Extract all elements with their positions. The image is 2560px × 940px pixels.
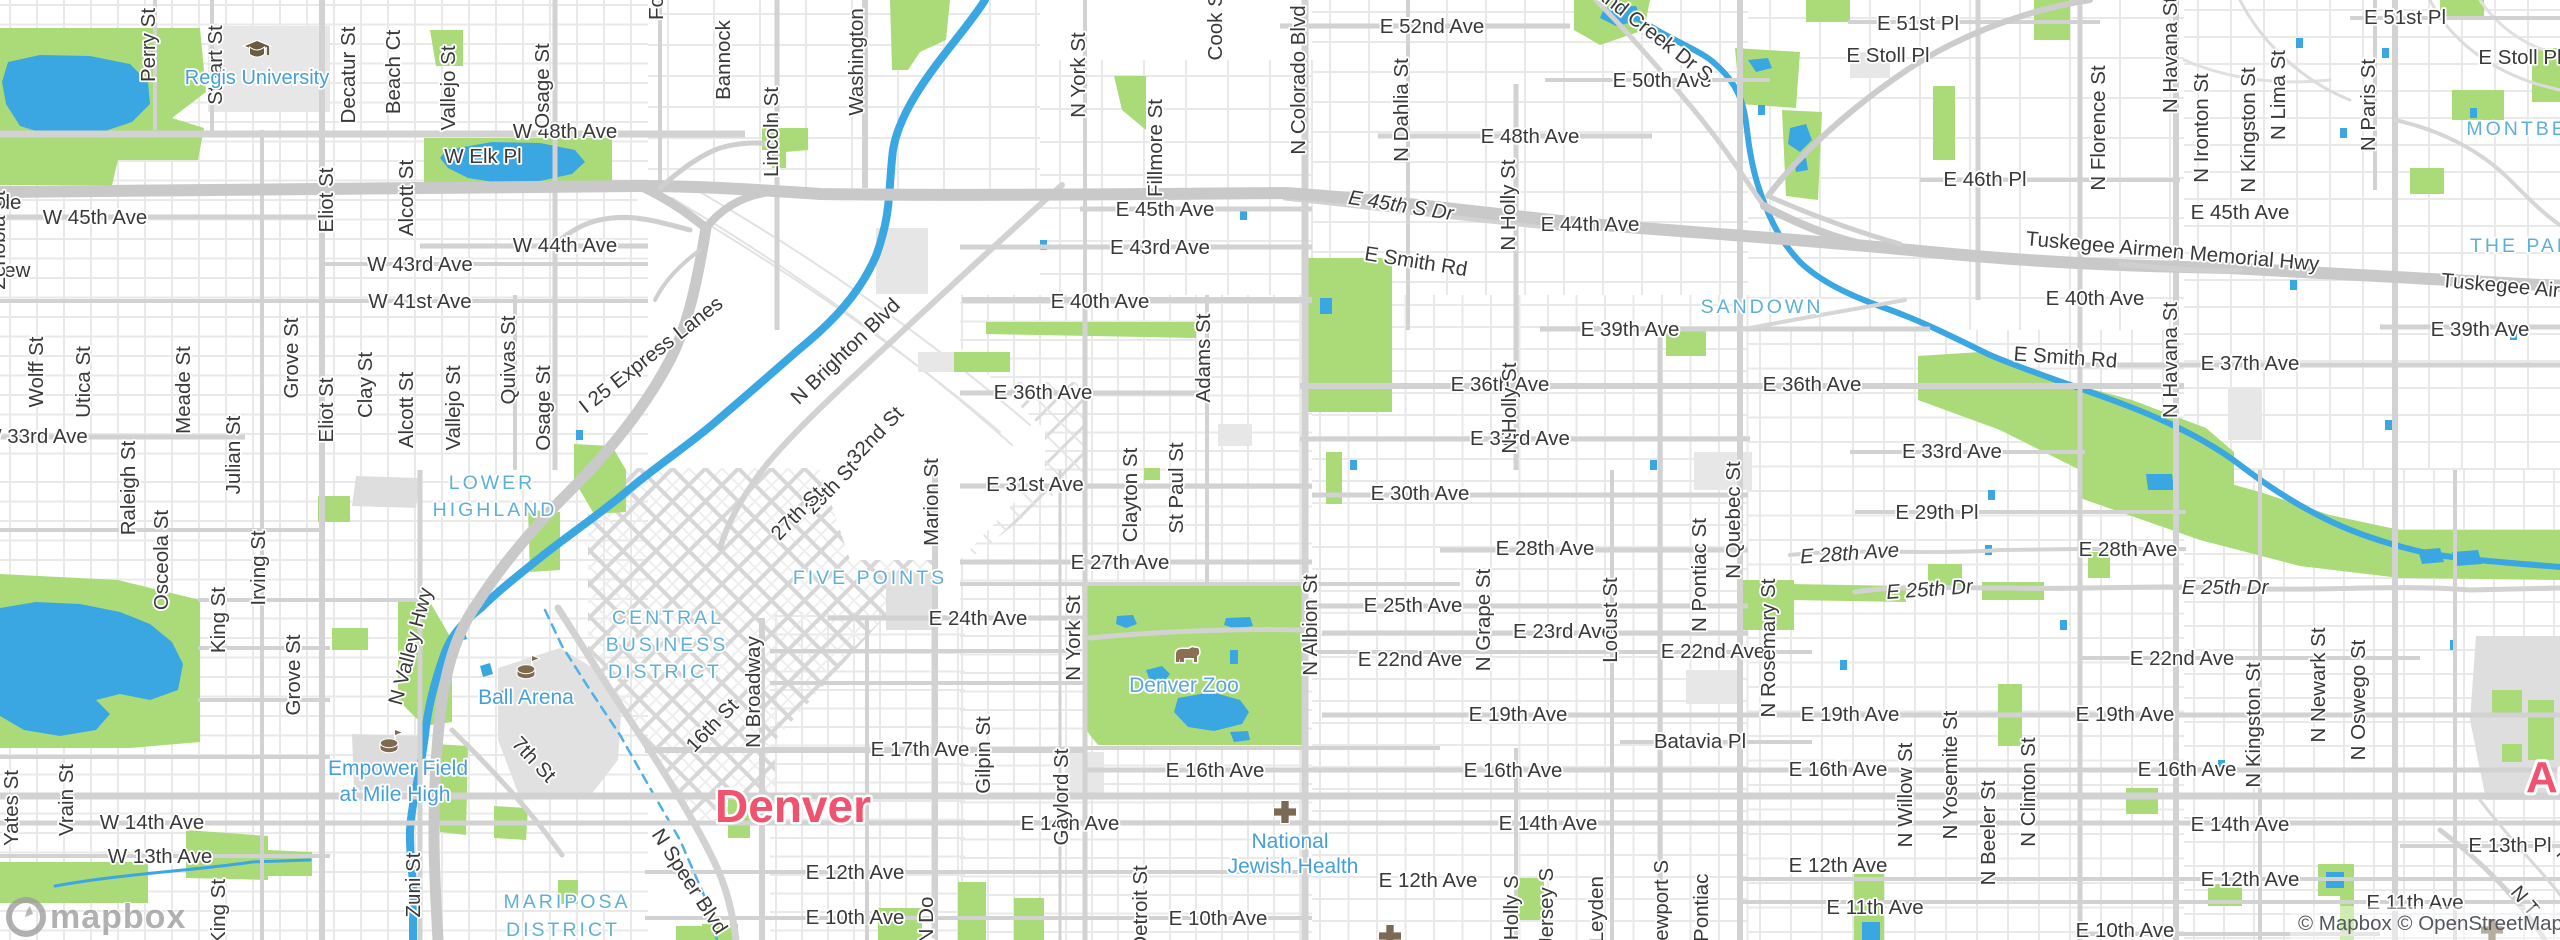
svg-text:SANDOWN: SANDOWN [1701,296,1824,318]
svg-text:Denver: Denver [715,780,871,832]
svg-text:E 16th Ave: E 16th Ave [1789,758,1888,781]
svg-text:W 44th Ave: W 44th Ave [513,234,617,257]
svg-text:N Pontiac St: N Pontiac St [1688,518,1711,632]
svg-text:N Albion St: N Albion St [1299,574,1322,676]
svg-text:N Paris St: N Paris St [2357,59,2380,152]
svg-text:E 30th Ave: E 30th Ave [1371,482,1470,505]
svg-text:MARIPOSA: MARIPOSA [504,891,631,913]
svg-text:N York St: N York St [1062,595,1085,681]
svg-text:N Rosemary St: N Rosemary St [1757,578,1780,717]
svg-text:E 16th Ave: E 16th Ave [1464,759,1563,782]
svg-text:Gilpin St: Gilpin St [972,716,995,794]
svg-text:N Clinton St: N Clinton St [2017,737,2040,847]
svg-text:Fillmore St: Fillmore St [1144,99,1167,197]
svg-text:E 12th Ave: E 12th Ave [2201,868,2300,891]
svg-text:Ball Arena: Ball Arena [478,686,574,709]
svg-text:Adams St: Adams St [1192,313,1215,402]
svg-text:at Mile High: at Mile High [340,783,451,806]
svg-text:Gaylord St: Gaylord St [1050,748,1073,845]
svg-text:Empower Field: Empower Field [328,757,468,780]
svg-text:National: National [1251,830,1328,853]
svg-text:THE PARKS: THE PARKS [2470,235,2560,257]
svg-text:E 22nd Ave: E 22nd Ave [2130,647,2235,670]
svg-text:N Holly St: N Holly St [1497,159,1520,250]
svg-text:N Yosemite St: N Yosemite St [1939,710,1962,839]
svg-text:HIGHLAND: HIGHLAND [433,499,558,521]
svg-text:N Florence St: N Florence St [2087,65,2110,191]
svg-text:E 12th Ave: E 12th Ave [1789,854,1888,877]
svg-text:Regis University: Regis University [185,67,329,89]
svg-text:Detroit St: Detroit St [1129,865,1152,940]
svg-text:Zuni St: Zuni St [402,852,425,917]
svg-text:Jewish Health: Jewish Health [1228,855,1359,878]
svg-text:Lincoln St: Lincoln St [760,87,783,177]
svg-text:Osage St: Osage St [532,365,555,451]
svg-text:E 40th Ave: E 40th Ave [2046,287,2145,310]
svg-text:CENTRAL: CENTRAL [612,607,724,629]
svg-text:Fo: Fo [645,0,668,20]
svg-text:N Colorado Blvd: N Colorado Blvd [1287,5,1310,154]
svg-text:N Holly S: N Holly S [1500,875,1523,940]
svg-text:Zenobia St: Zenobia St [0,190,10,289]
svg-text:DISTRICT: DISTRICT [608,661,722,683]
svg-text:E 36th Ave: E 36th Ave [994,381,1093,404]
svg-text:N Lima St: N Lima St [2267,50,2290,140]
svg-text:Osceola St: Osceola St [150,510,173,611]
svg-text:Vrain St: Vrain St [55,764,78,836]
svg-text:W Elk Pl: W Elk Pl [444,145,521,168]
svg-text:E 51st Pl: E 51st Pl [1877,12,1959,35]
svg-text:N Beeler St: N Beeler St [1977,780,2000,885]
svg-text:N Havana St: N Havana St [2159,302,2182,419]
svg-text:mapbox: mapbox [50,898,186,936]
svg-text:E 22nd Ave: E 22nd Ave [1661,640,1766,663]
svg-text:E 52nd Ave: E 52nd Ave [1380,15,1485,38]
svg-text:E 10th Ave: E 10th Ave [2076,919,2175,940]
svg-text:Eliot St: Eliot St [315,377,338,442]
svg-text:E 45th Ave: E 45th Ave [1116,198,1215,221]
svg-text:Grove St: Grove St [282,634,305,715]
svg-text:Denver Zoo: Denver Zoo [1129,674,1239,697]
svg-text:Meade St: Meade St [172,346,195,434]
svg-text:E 16th Ave: E 16th Ave [1166,759,1265,782]
svg-text:N Do: N Do [915,897,938,940]
svg-text:Quivas St: Quivas St [497,315,520,404]
svg-text:DISTRICT: DISTRICT [506,919,620,940]
svg-text:Batavia Pl: Batavia Pl [1654,730,1746,753]
svg-text:W 45th Ave: W 45th Ave [43,206,147,229]
svg-text:St Paul St: St Paul St [1165,442,1188,533]
svg-text:Alcott St: Alcott St [395,160,418,237]
svg-text:N Ironton St: N Ironton St [2190,73,2213,183]
svg-text:E 10th Ave: E 10th Ave [1169,907,1268,930]
svg-text:N Leyden: N Leyden [1585,876,1608,940]
svg-text:N Dahlia St: N Dahlia St [1390,58,1413,162]
svg-text:King St: King St [207,587,230,653]
svg-text:E 14th Ave: E 14th Ave [1499,812,1598,835]
svg-text:Clay St: Clay St [354,352,377,418]
svg-text:Washington: Washington [845,8,868,116]
svg-text:E 19th Ave: E 19th Ave [1469,703,1568,726]
svg-text:Utica St: Utica St [72,346,95,418]
svg-text:E 24th Ave: E 24th Ave [929,607,1028,630]
svg-text:E 48th Ave: E 48th Ave [1481,125,1580,148]
svg-text:N York St: N York St [1067,32,1090,118]
svg-text:Stuart St: Stuart St [204,25,227,105]
svg-text:Raleigh St: Raleigh St [117,440,140,535]
svg-text:E 27th Ave: E 27th Ave [1071,551,1170,574]
svg-text:E 25th Dr: E 25th Dr [2182,576,2270,599]
svg-text:N Broadway: N Broadway [742,635,765,747]
svg-text:Locust St: Locust St [1599,577,1622,663]
svg-text:Vallejo St: Vallejo St [437,45,460,130]
svg-text:Au: Au [2526,753,2560,802]
svg-text:E 45th Ave: E 45th Ave [2191,201,2290,224]
svg-text:E 29th Pl: E 29th Pl [1895,501,1978,524]
svg-text:Yates St: Yates St [0,770,23,846]
svg-text:W 43rd Ave: W 43rd Ave [367,253,473,276]
svg-text:Irving St: Irving St [247,530,270,605]
svg-text:W 33rd Ave: W 33rd Ave [0,425,88,448]
svg-text:E 16th Ave: E 16th Ave [2138,758,2237,781]
svg-text:E 11th Ave: E 11th Ave [1826,896,1923,919]
svg-text:BUSINESS: BUSINESS [606,634,729,656]
svg-text:E 43rd Ave: E 43rd Ave [1110,236,1210,259]
svg-text:E 31st Ave: E 31st Ave [986,473,1084,496]
svg-text:N Holly St: N Holly St [1498,362,1521,453]
svg-text:King St: King St [207,879,230,940]
svg-text:Julian St: Julian St [222,415,245,494]
svg-text:W 48th Ave: W 48th Ave [513,120,617,143]
svg-text:E 37th Ave: E 37th Ave [2201,352,2300,375]
svg-text:E 46th Pl: E 46th Pl [1943,168,2026,191]
svg-text:N Oswego St: N Oswego St [2347,639,2370,760]
svg-text:N Havana St: N Havana St [2159,0,2182,113]
svg-text:N Quebec St: N Quebec St [1722,461,1745,579]
svg-text:E 22nd Ave: E 22nd Ave [1358,648,1463,671]
svg-text:E 14th Ave: E 14th Ave [2191,813,2290,836]
svg-text:FIVE POINTS: FIVE POINTS [793,567,947,589]
svg-text:© Mapbox © OpenStreetMap: © Mapbox © OpenStreetMap [2298,912,2560,935]
svg-text:Beach Ct: Beach Ct [382,30,405,115]
svg-text:N Kingston St: N Kingston St [2242,662,2265,788]
svg-text:E Stoll Pl: E Stoll Pl [1846,44,1929,67]
svg-text:E 51st Pl: E 51st Pl [2364,6,2446,29]
svg-text:N Newport S: N Newport S [1650,860,1673,940]
svg-text:Decatur St: Decatur St [337,26,360,123]
svg-text:N Jersey S: N Jersey S [1535,868,1558,940]
svg-text:Wolff St: Wolff St [25,336,48,407]
svg-text:E 17th Ave: E 17th Ave [871,738,970,761]
svg-text:Cook St: Cook St [1204,0,1227,60]
svg-text:E 39th Ave: E 39th Ave [2431,318,2530,341]
svg-text:N Grape St: N Grape St [1472,568,1495,671]
svg-text:E 19th Ave: E 19th Ave [2076,703,2175,726]
svg-text:MONTBELLO: MONTBELLO [2466,118,2560,140]
svg-text:Clayton St: Clayton St [1119,447,1142,542]
svg-text:N Kingston St: N Kingston St [2237,67,2260,193]
svg-text:Vallejo St: Vallejo St [442,365,465,450]
svg-text:E 36th Ave: E 36th Ave [1763,373,1862,396]
svg-text:Bannock: Bannock [712,19,735,100]
svg-text:Alcott St: Alcott St [395,372,418,449]
svg-text:E 10th Ave: E 10th Ave [806,906,905,929]
svg-text:E 44th Ave: E 44th Ave [1541,213,1640,236]
svg-text:E 25th Ave: E 25th Ave [1364,594,1463,617]
svg-text:E 28th Ave: E 28th Ave [2079,538,2178,561]
svg-text:E 12th Ave: E 12th Ave [806,861,905,884]
svg-text:Marion St: Marion St [920,458,943,546]
svg-text:N Newark St: N Newark St [2307,627,2330,742]
svg-text:W 41st Ave: W 41st Ave [368,290,471,313]
svg-text:E 12th Ave: E 12th Ave [1379,869,1478,892]
svg-text:W 13th Ave: W 13th Ave [108,845,212,868]
svg-text:E Stoll Pl: E Stoll Pl [2478,46,2560,69]
svg-text:Osage St: Osage St [531,43,554,129]
svg-text:Eliot St: Eliot St [315,167,338,232]
svg-text:LOWER: LOWER [449,472,536,494]
svg-text:E 19th Ave: E 19th Ave [1801,703,1900,726]
svg-text:N Willow St: N Willow St [1894,742,1917,847]
svg-text:Perry St: Perry St [137,8,160,82]
svg-text:E 39th Ave: E 39th Ave [1581,318,1680,341]
svg-text:E 13th Pl: E 13th Pl [2468,834,2551,857]
svg-text:Grove St: Grove St [280,317,303,398]
svg-text:E 33rd Ave: E 33rd Ave [1902,440,2002,463]
svg-text:E 40th Ave: E 40th Ave [1051,290,1150,313]
svg-text:E 28th Ave: E 28th Ave [1496,537,1595,560]
svg-text:N Pontiac: N Pontiac [1690,874,1713,940]
svg-text:W 14th Ave: W 14th Ave [100,811,204,834]
svg-text:E 23rd Ave: E 23rd Ave [1513,620,1613,643]
